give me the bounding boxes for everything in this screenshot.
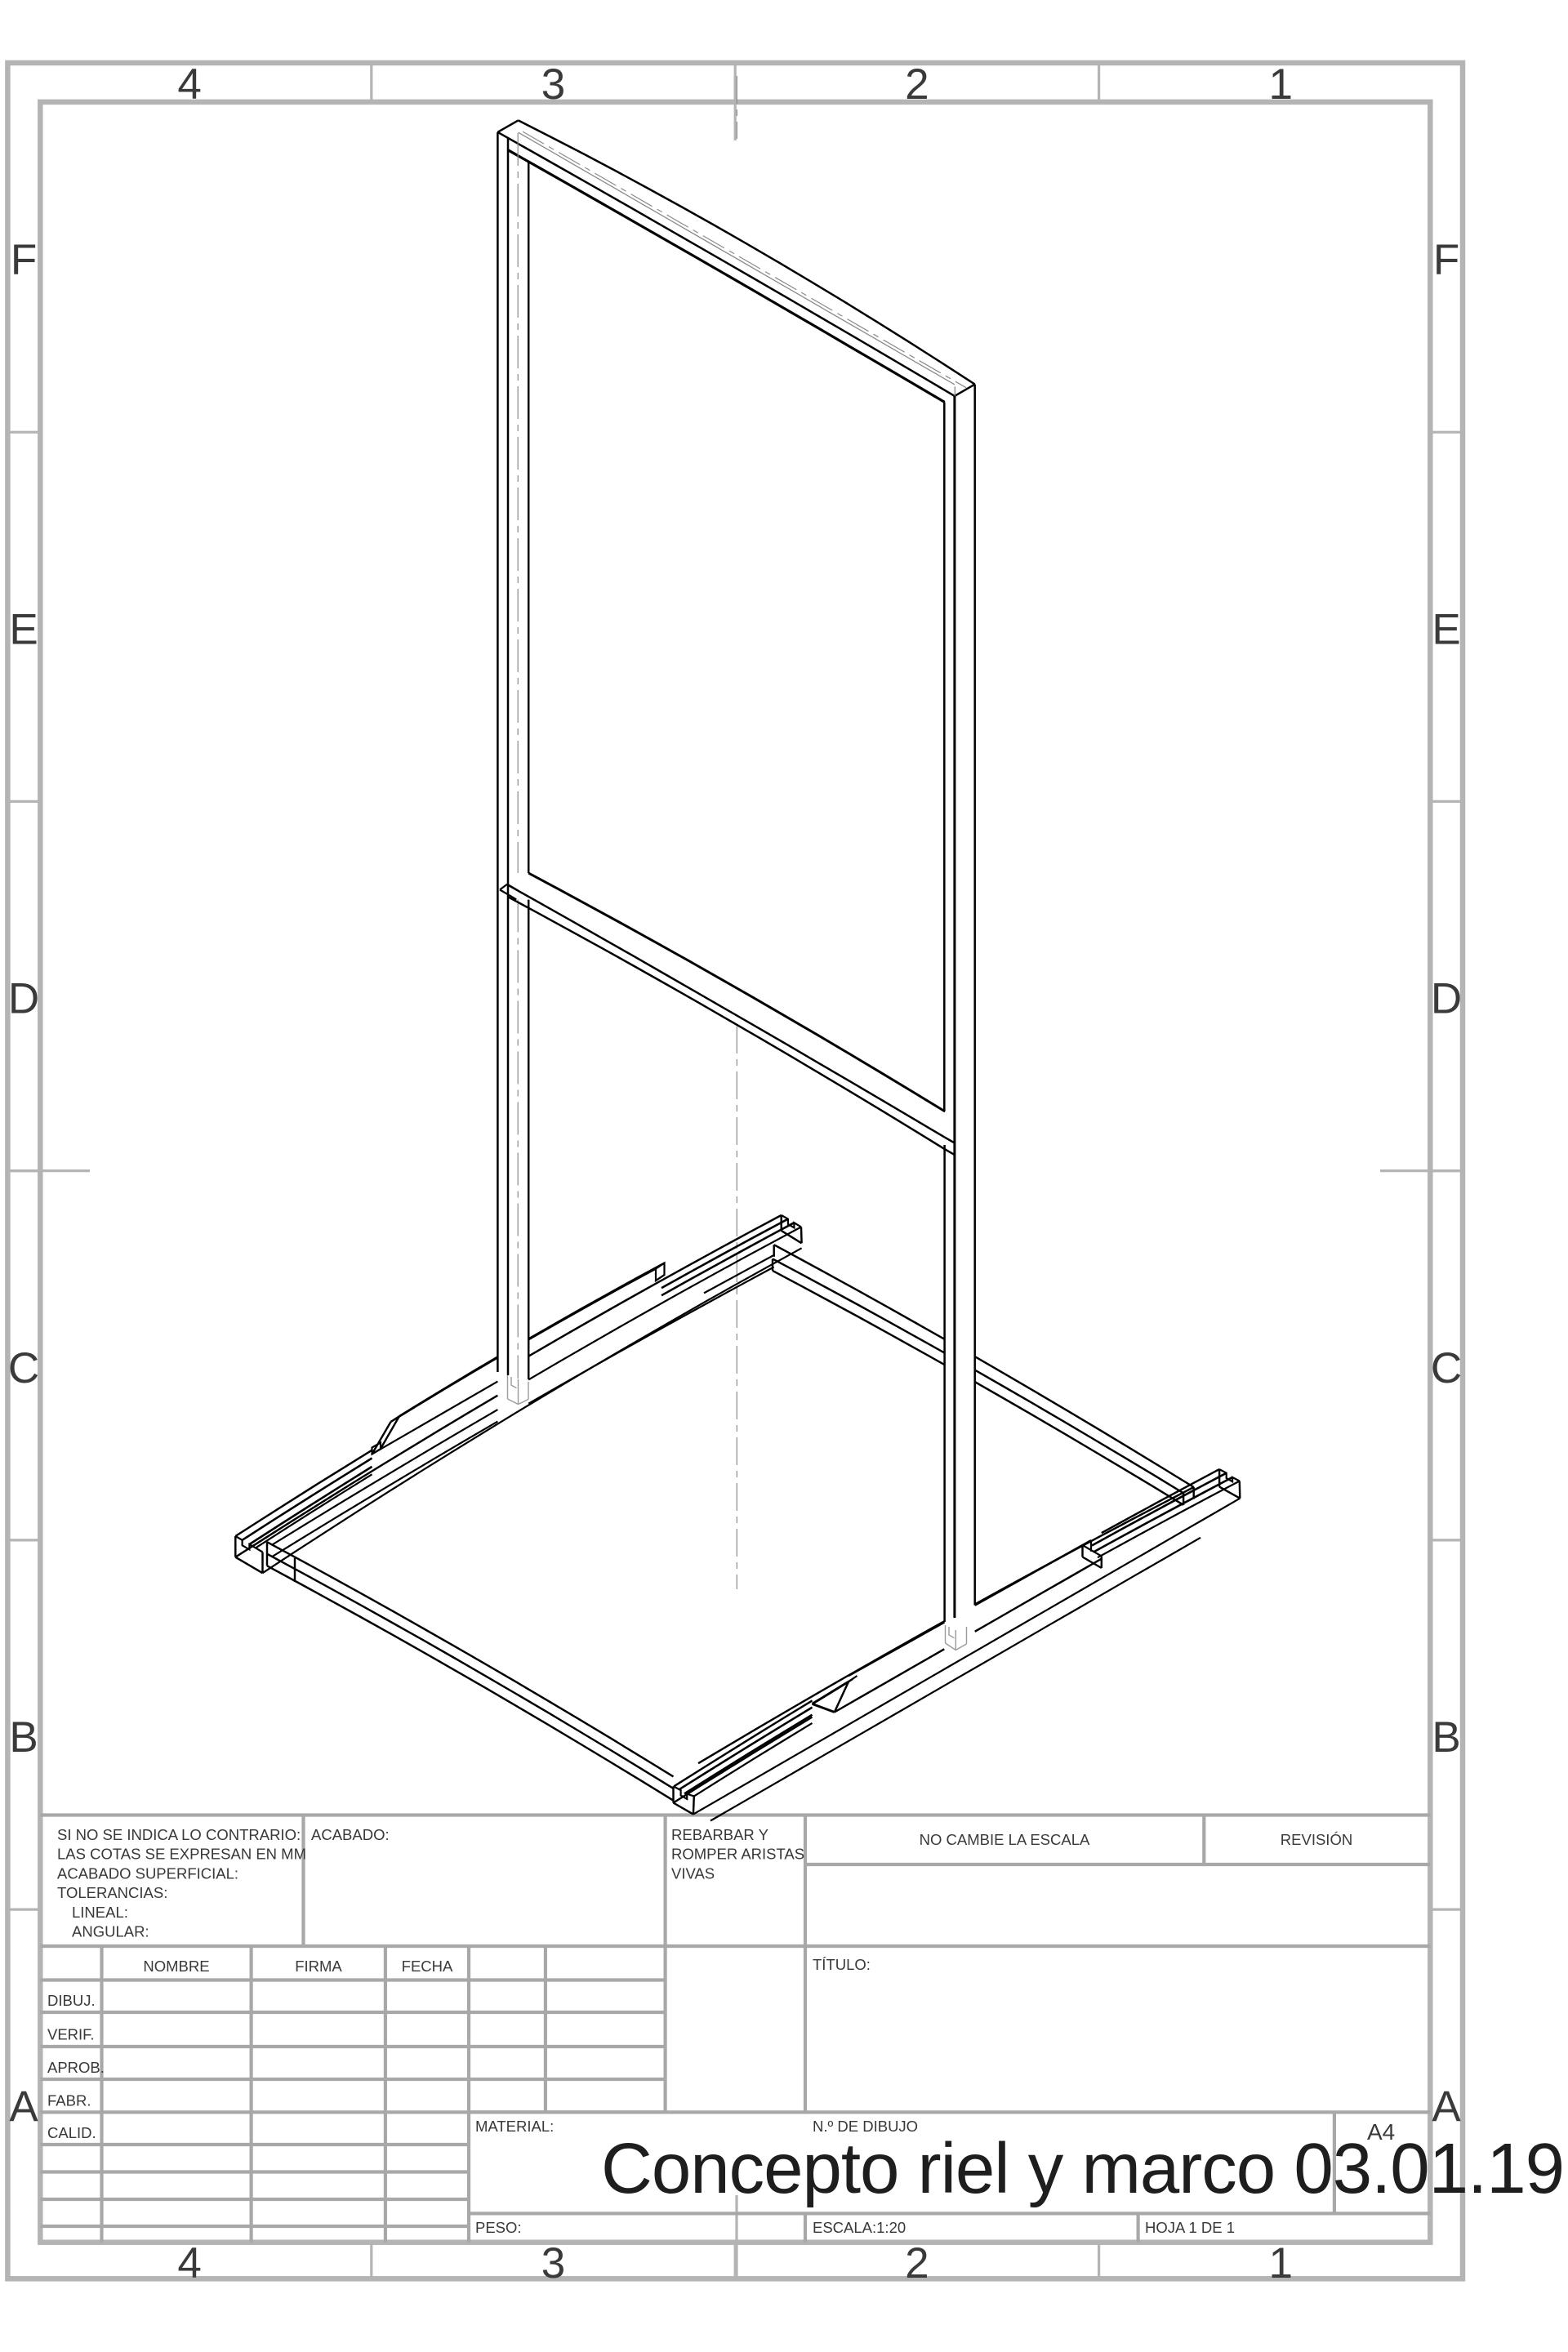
svg-text:A: A: [1432, 2082, 1461, 2131]
svg-text:E: E: [9, 605, 38, 653]
svg-text:TÍTULO:: TÍTULO:: [813, 1956, 871, 1973]
svg-text:VIVAS: VIVAS: [671, 1864, 715, 1882]
svg-text:2: 2: [905, 2239, 929, 2287]
svg-text:C: C: [1431, 1344, 1462, 1392]
svg-text:B: B: [1432, 1713, 1460, 1762]
svg-text:VERIF.: VERIF.: [47, 2026, 95, 2043]
svg-text:F: F: [11, 236, 37, 284]
svg-text:3: 3: [541, 60, 565, 109]
svg-text:E: E: [1432, 605, 1460, 653]
svg-text:CALID.: CALID.: [47, 2124, 96, 2141]
svg-text:1: 1: [1269, 2239, 1293, 2287]
svg-text:B: B: [9, 1713, 38, 1762]
svg-text:FABR.: FABR.: [47, 2092, 91, 2109]
svg-text:3: 3: [541, 2239, 565, 2287]
svg-text:MATERIAL:: MATERIAL:: [475, 2118, 554, 2135]
svg-text:DIBUJ.: DIBUJ.: [47, 1992, 96, 2009]
svg-text:NO CAMBIE LA ESCALA: NO CAMBIE LA ESCALA: [920, 1831, 1090, 1848]
svg-text:4: 4: [177, 2239, 201, 2287]
svg-text:LAS COTAS SE EXPRESAN EN MM: LAS COTAS SE EXPRESAN EN MM: [57, 1846, 306, 1863]
svg-text:FECHA: FECHA: [402, 1958, 453, 1975]
svg-text:D: D: [8, 975, 39, 1023]
svg-text:LINEAL:: LINEAL:: [72, 1904, 128, 1921]
svg-text:FIRMA: FIRMA: [295, 1958, 342, 1975]
svg-text:NOMBRE: NOMBRE: [143, 1958, 209, 1975]
svg-text:A: A: [9, 2082, 38, 2131]
svg-text:SI NO SE INDICA LO CONTRARIO:: SI NO SE INDICA LO CONTRARIO:: [57, 1826, 301, 1843]
svg-text:REVISIÓN: REVISIÓN: [1281, 1831, 1352, 1848]
svg-text:D: D: [1431, 975, 1462, 1023]
svg-text:HOJA 1 DE 1: HOJA 1 DE 1: [1145, 2219, 1235, 2236]
svg-text:ACABADO SUPERFICIAL:: ACABADO SUPERFICIAL:: [57, 1864, 238, 1882]
svg-text:REBARBAR Y: REBARBAR Y: [671, 1826, 768, 1843]
svg-text:1: 1: [1269, 60, 1293, 109]
svg-text:F: F: [1433, 236, 1459, 284]
svg-text:4: 4: [177, 60, 201, 109]
svg-text:ESCALA:1:20: ESCALA:1:20: [813, 2219, 906, 2236]
svg-text:PESO:: PESO:: [475, 2219, 522, 2236]
svg-text:ANGULAR:: ANGULAR:: [72, 1923, 149, 1940]
svg-text:TOLERANCIAS:: TOLERANCIAS:: [57, 1884, 167, 1901]
svg-text:C: C: [8, 1344, 39, 1392]
svg-text:Concepto riel y marco 03.01.19: Concepto riel y marco 03.01.19: [601, 2129, 1564, 2208]
svg-text:ACABADO:: ACABADO:: [311, 1826, 390, 1843]
svg-text:2: 2: [905, 60, 929, 109]
svg-text:ROMPER ARISTAS: ROMPER ARISTAS: [671, 1846, 804, 1863]
svg-text:APROB.: APROB.: [47, 2059, 105, 2076]
